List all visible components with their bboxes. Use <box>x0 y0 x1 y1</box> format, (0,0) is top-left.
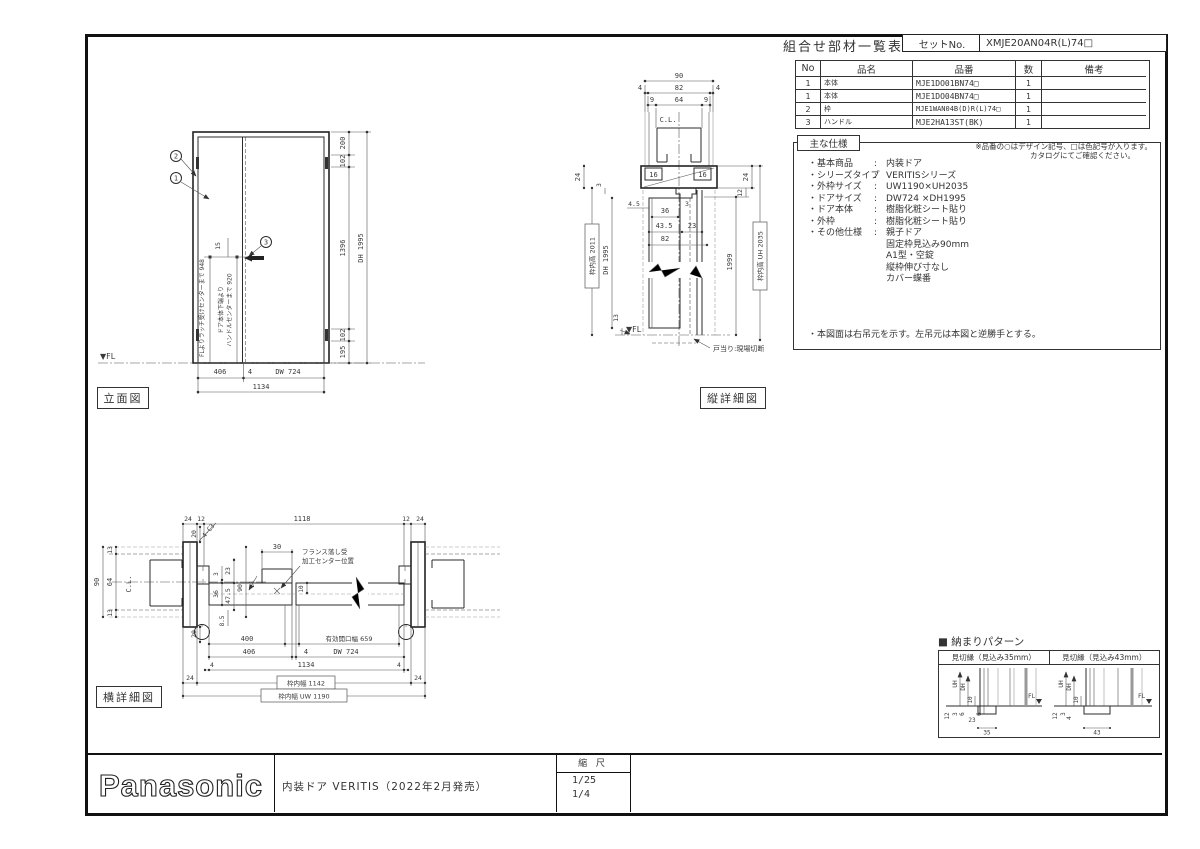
table-row: 3 ハンドル MJE2HA13ST(BK) 1 <box>796 116 1149 128</box>
parts-table-header: No 品名 品番 数 備考 <box>796 61 1149 77</box>
spec-extra: カバー蝶番 <box>886 271 931 284</box>
drawing-description: 内装ドア VERITIS（2022年2月発売） <box>282 779 487 794</box>
table-row: 2 枠 MJE1WAN04B(D)R(L)74□ 1 <box>796 103 1149 116</box>
titleblock-divider <box>556 753 557 812</box>
scale-value-2: 1/4 <box>572 789 590 800</box>
pattern-header-35: 見切縁（見込み35mm） <box>939 651 1050 664</box>
titleblock-divider <box>630 753 631 812</box>
titleblock-divider <box>88 753 1162 755</box>
set-no-value: XMJE20AN04R(L)74□ <box>979 34 1167 52</box>
pattern-title: ■ 納まりパターン <box>938 634 1024 649</box>
set-no-label: セットNo. <box>902 34 982 52</box>
elevation-label: 立面図 <box>97 387 149 409</box>
vertical-section-label: 縦詳細図 <box>700 387 766 409</box>
hinge-side-note: ・本図面は右吊元を示す。左吊元は本図と逆勝手とする。 <box>808 327 1041 340</box>
table-row: 1 本体 MJE1DO04BN74□ 1 <box>796 90 1149 103</box>
scale-label: 縮 尺 <box>558 756 628 769</box>
drawing-sheet: ▼FL 2 1 3 406 4 DW 724 1134 <box>0 0 1200 849</box>
spec-box-title: 主な仕様 <box>797 135 860 151</box>
titleblock-divider <box>556 772 630 773</box>
pattern-table: 見切縁（見込み35mm） 見切縁（見込み43mm） <box>938 650 1160 738</box>
horizontal-section-label: 横詳細図 <box>96 686 162 708</box>
parts-table: No 品名 品番 数 備考 1 本体 MJE1DO01BN74□ 1 1 本体 … <box>795 60 1150 129</box>
titleblock-divider <box>274 753 275 812</box>
table-row: 1 本体 MJE1DO01BN74□ 1 <box>796 77 1149 90</box>
parts-list-title: 組合せ部材一覧表 <box>783 36 903 55</box>
pattern-header-43: 見切縁（見込み43mm） <box>1050 651 1160 664</box>
scale-value-1: 1/25 <box>572 775 596 786</box>
catalog-note: カタログにてご確認ください。 <box>950 150 1135 161</box>
